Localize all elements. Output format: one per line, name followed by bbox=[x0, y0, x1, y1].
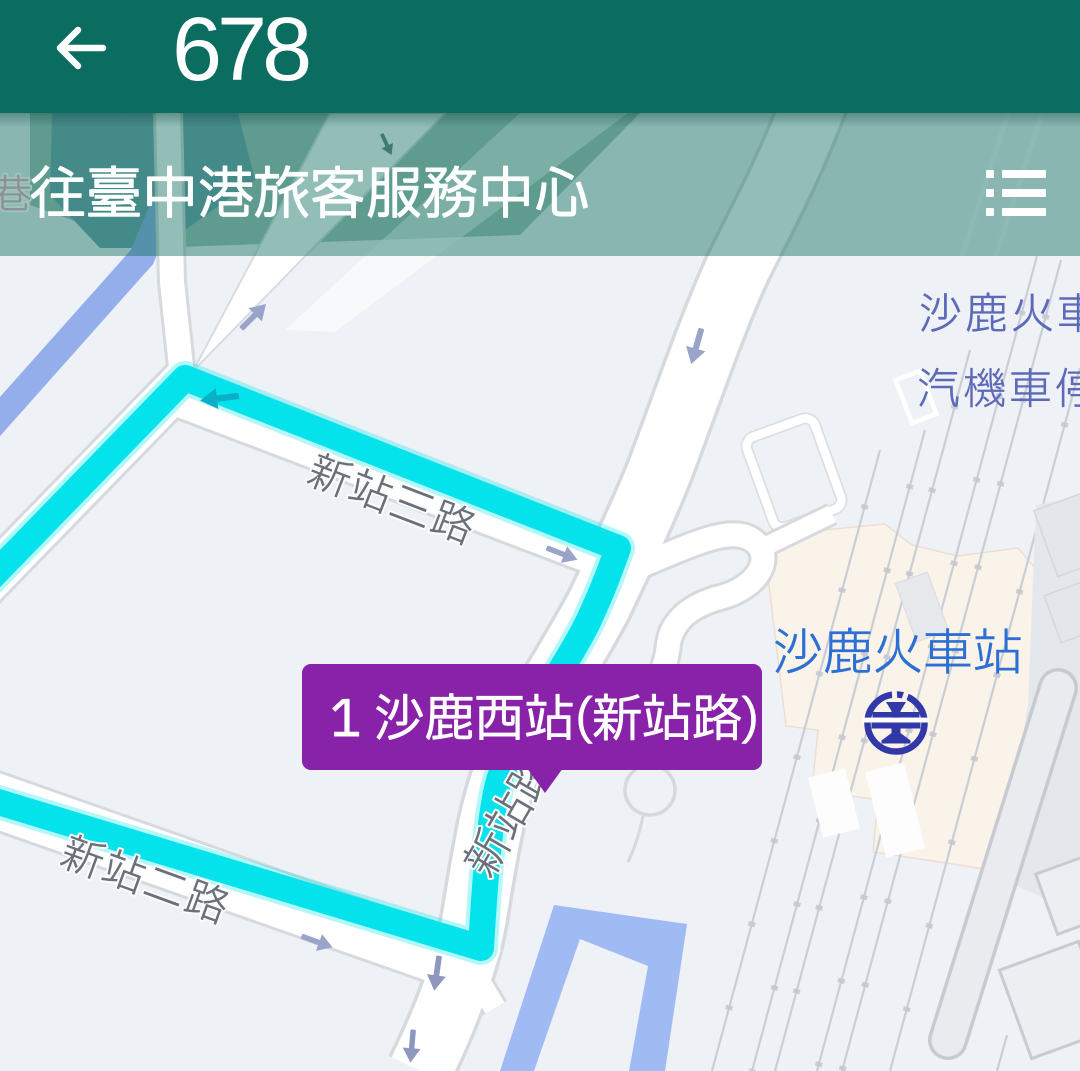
svg-text:678: 678 bbox=[172, 0, 309, 100]
